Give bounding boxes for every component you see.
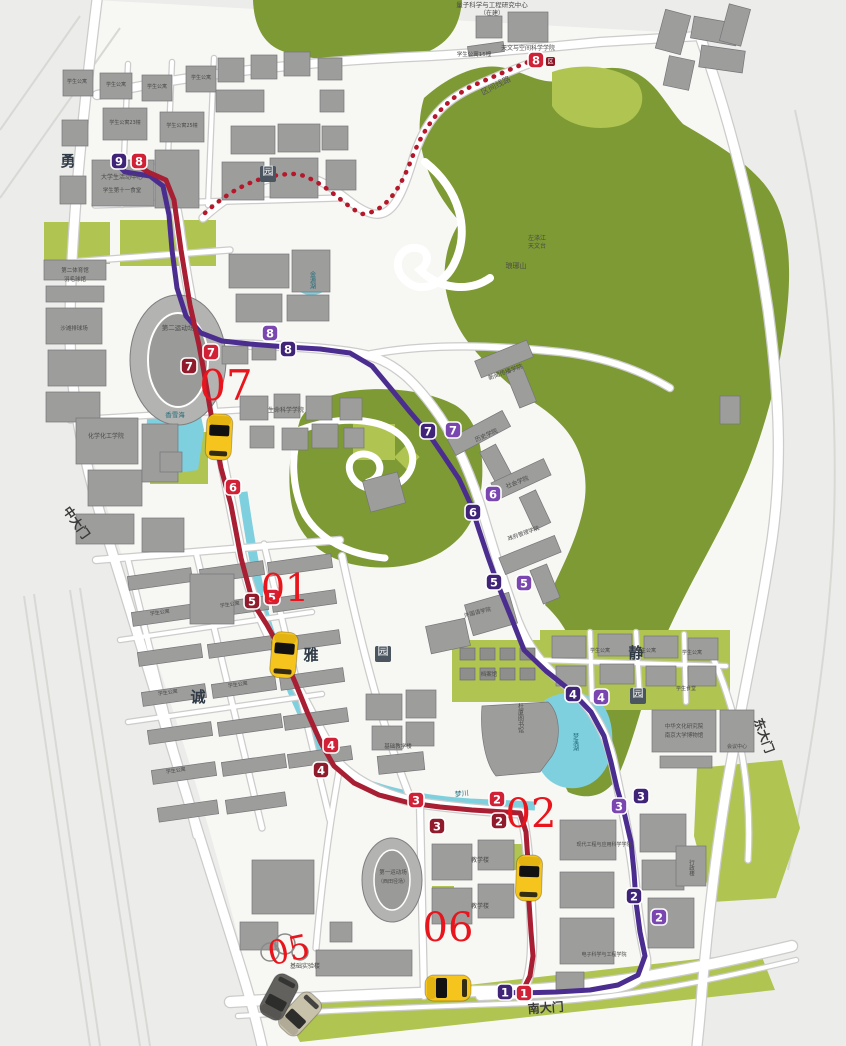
stop-badge-number: 4	[317, 763, 325, 777]
stop-badge-number: 3	[433, 819, 441, 833]
building	[46, 286, 104, 302]
building	[287, 295, 329, 321]
stop-badge-purple-7[interactable]: 7	[420, 423, 436, 439]
place-label: 教学楼	[471, 902, 489, 910]
place-label: 左涤江	[528, 234, 546, 242]
building	[560, 820, 616, 860]
building	[476, 16, 502, 38]
stop-badge-purple-5[interactable]: 5	[486, 574, 502, 590]
stop-badge-number: 2	[655, 910, 663, 924]
zone-label: 诚	[190, 688, 205, 706]
place-label: 学生公寓	[106, 81, 126, 88]
stop-badge-number: 1	[501, 985, 509, 999]
stop-badge-number: 9	[115, 154, 123, 168]
building	[552, 636, 586, 658]
building	[88, 470, 142, 506]
stop-badge-number: 2	[630, 889, 638, 903]
stop-badge-number: 6	[229, 480, 237, 494]
water-label: 梦溪湖	[572, 732, 579, 752]
stop-badge-number: 7	[424, 424, 432, 438]
place-label: 大学生活动中心	[101, 173, 143, 181]
order-number-06: 06	[423, 905, 474, 951]
building	[62, 120, 88, 146]
place-label: 行政楼	[688, 859, 695, 878]
place-label: （在建）	[480, 9, 504, 17]
stop-badge-purple-2[interactable]: 2	[651, 909, 667, 925]
stop-badge-purple-5[interactable]: 5	[516, 575, 532, 591]
place-label: 南京大学博物馆	[665, 731, 704, 739]
zone-box-text: 园	[633, 687, 644, 700]
stop-badge-number: 5	[490, 575, 498, 589]
stop-badge-purple-6[interactable]: 6	[465, 504, 481, 520]
building	[284, 52, 310, 76]
building	[560, 872, 614, 908]
stop-badge-red-3[interactable]: 3	[429, 818, 445, 834]
car-windshield	[519, 866, 539, 878]
stop-badge-number: 4	[569, 687, 577, 701]
building	[340, 398, 362, 420]
building	[316, 950, 412, 976]
building	[600, 664, 634, 684]
stop-badge-number: 7	[207, 345, 215, 359]
building	[480, 648, 495, 660]
stop-badge-red-6[interactable]: 6	[225, 479, 241, 495]
stop-badge-number: 6	[469, 505, 477, 519]
stop-badge-number: 4	[597, 690, 605, 704]
place-label: 学生公寓	[636, 647, 656, 654]
stop-badge-purple-1[interactable]: 1	[497, 984, 513, 1000]
stop-badge-number: 2	[493, 792, 501, 806]
place-label: 教学楼	[471, 856, 489, 864]
stop-badge-purple-7[interactable]: 7	[445, 422, 461, 438]
campus-map[interactable]: 勇诚雅静园园园香雪海金源湖梦川梦溪湖区间线路量子科学与工程研究中心（在建）学生公…	[0, 0, 846, 1046]
car-windshield	[274, 642, 295, 655]
taxi-07[interactable]	[205, 413, 233, 460]
place-label: 生命科学学院	[268, 406, 304, 414]
zone-label: 勇	[60, 152, 75, 170]
building	[320, 90, 344, 112]
building	[278, 124, 320, 152]
taxi-06[interactable]	[425, 975, 471, 1001]
place-label: 学生第十一食堂	[103, 186, 142, 194]
place-label: 学生公寓	[147, 83, 167, 90]
stop-badge-red-7[interactable]: 7	[203, 344, 219, 360]
stop-badge-number: 6	[489, 487, 497, 501]
building	[236, 294, 282, 322]
building	[160, 452, 182, 472]
zone-label: 雅	[302, 646, 318, 664]
stop-badge-purple-4[interactable]: 4	[565, 686, 581, 702]
stop-badge-number: 8	[532, 53, 540, 67]
building	[76, 418, 138, 464]
car-hood	[209, 415, 231, 425]
order-number-01: 01	[261, 566, 309, 610]
place-label: 琅琊山	[506, 261, 527, 270]
building	[720, 396, 740, 424]
road	[420, 806, 424, 996]
stop-badge-red-8[interactable]: 8	[131, 153, 147, 169]
building	[250, 426, 274, 448]
building	[652, 710, 716, 752]
building	[478, 840, 514, 870]
building	[688, 638, 718, 660]
building	[312, 424, 338, 448]
building	[231, 126, 275, 154]
water-label: 梦川	[454, 789, 469, 798]
zone-box-text: 园	[263, 165, 274, 178]
stop-badge-tag: 区	[547, 59, 553, 66]
building	[344, 428, 364, 448]
building	[478, 884, 514, 918]
stop-badge-number: 8	[266, 326, 274, 340]
stop-badge-number: 8	[284, 342, 292, 356]
stop-badge-red-7[interactable]: 7	[181, 358, 197, 374]
water-label: 香雪海	[165, 410, 185, 419]
place-label: （西田径场）	[378, 878, 408, 885]
zone-boxed-label: 园	[630, 687, 646, 705]
place-label: 天文台	[528, 242, 546, 250]
place-label: 现代工程与应用科学学院	[576, 841, 631, 848]
stop-badge-number: 3	[637, 789, 645, 803]
taxi-02[interactable]	[515, 855, 543, 902]
water-label: 金源湖	[309, 270, 316, 290]
campus-map-stage: 勇诚雅静园园园香雪海金源湖梦川梦溪湖区间线路量子科学与工程研究中心（在建）学生公…	[0, 0, 846, 1046]
stop-badge-red-4[interactable]: 4	[323, 737, 339, 753]
stop-badge-number: 2	[495, 814, 503, 828]
order-number-07: 07	[199, 361, 252, 410]
zone-boxed-label: 园	[375, 645, 391, 663]
car-rear-window	[519, 892, 537, 898]
building	[660, 756, 712, 768]
place-label: 中华文化研究院	[665, 722, 704, 730]
stop-badge-purple-9[interactable]: 9	[111, 153, 127, 169]
building	[688, 666, 716, 686]
place-label: 沙滩排球场	[60, 324, 88, 332]
building	[508, 12, 548, 42]
building	[46, 392, 100, 422]
building	[60, 176, 86, 204]
building	[318, 58, 342, 80]
building	[432, 844, 472, 880]
zone-boxed-label: 园	[260, 165, 276, 183]
building	[48, 350, 106, 386]
stop-badge-purple-6[interactable]: 6	[485, 486, 501, 502]
place-label: 化学化工学院	[88, 432, 124, 440]
place-label: 第二体育馆	[61, 266, 89, 274]
stop-badge-number: 8	[135, 154, 143, 168]
stop-badge-purple-4[interactable]: 4	[593, 689, 609, 705]
building	[190, 574, 234, 624]
stop-badge-red-4[interactable]: 4	[313, 762, 329, 778]
stop-badge-number: 7	[449, 423, 457, 437]
building	[322, 126, 348, 150]
building	[229, 254, 289, 288]
building	[306, 396, 332, 420]
car-windshield	[209, 424, 230, 436]
stop-badge-number: 1	[520, 986, 528, 1000]
place-label: 学生公寓23幢	[109, 119, 140, 126]
place-label: 第二运动场	[162, 323, 195, 332]
building	[644, 636, 678, 658]
place-label: 基础教学楼	[384, 742, 412, 750]
stop-badge-purple-3[interactable]: 3	[611, 798, 627, 814]
building	[406, 690, 436, 718]
stop-badge-red-2[interactable]: 2	[489, 791, 505, 807]
stop-badge-purple-8[interactable]: 8	[280, 341, 296, 357]
road	[590, 632, 592, 700]
stop-badge-red-5[interactable]: 5	[244, 593, 260, 609]
stop-badge-red-3[interactable]: 3	[408, 792, 424, 808]
stop-badge-number: 4	[327, 738, 335, 752]
building	[366, 694, 402, 720]
stop-badge-number: 7	[185, 359, 193, 373]
place-label: 学生公寓	[590, 647, 610, 654]
place-label: 天文与空间科学学院	[501, 44, 555, 52]
place-label: 学生公寓	[682, 649, 702, 656]
building	[251, 55, 277, 79]
place-label: 杜厦图书馆	[517, 702, 524, 734]
building	[274, 394, 300, 418]
stop-badge-number: 5	[520, 576, 528, 590]
place-label: 量子科学与工程研究中心	[456, 0, 528, 9]
car-windshield	[436, 978, 447, 998]
car-rear-window	[209, 451, 227, 457]
building	[218, 58, 244, 82]
order-number-02: 02	[506, 791, 557, 837]
building	[500, 648, 515, 660]
stop-badge-purple-3[interactable]: 3	[633, 788, 649, 804]
place-label: 学生公寓	[67, 78, 87, 85]
car-hood	[518, 857, 540, 867]
building	[406, 722, 434, 746]
car-hood	[427, 977, 436, 999]
building	[460, 648, 475, 660]
building	[252, 860, 314, 914]
place-label: 会议中心	[727, 743, 747, 750]
building	[330, 922, 352, 942]
stop-badge-number: 3	[412, 793, 420, 807]
place-label: 学生公寓15幢	[457, 50, 492, 58]
zone-box-text: 园	[378, 645, 389, 658]
building	[646, 666, 676, 686]
stop-badge-purple-8[interactable]: 8	[262, 325, 278, 341]
building	[282, 428, 308, 450]
place-label: 羽毛球馆	[64, 275, 87, 283]
stop-badge-purple-2[interactable]: 2	[626, 888, 642, 904]
place-label: 档案馆	[481, 670, 498, 678]
stop-badge-red-1[interactable]: 1	[516, 985, 532, 1001]
building	[500, 668, 515, 680]
place-label: 第一运动场	[379, 868, 407, 876]
building	[142, 518, 184, 552]
place-label: 电子科学与工程学院	[581, 951, 626, 958]
place-label: 学生食堂	[676, 685, 696, 692]
place-label: 学生公寓	[191, 74, 211, 81]
building	[216, 90, 264, 112]
building	[326, 160, 356, 190]
taxi-01[interactable]	[269, 631, 299, 679]
car-rear-window	[462, 979, 467, 997]
building	[520, 668, 535, 680]
stop-badge-number: 5	[248, 594, 256, 608]
stop-badge-number: 3	[615, 799, 623, 813]
building	[460, 668, 475, 680]
gate-label: 南大门	[527, 999, 564, 1016]
place-label: 学生公寓25幢	[166, 122, 197, 129]
